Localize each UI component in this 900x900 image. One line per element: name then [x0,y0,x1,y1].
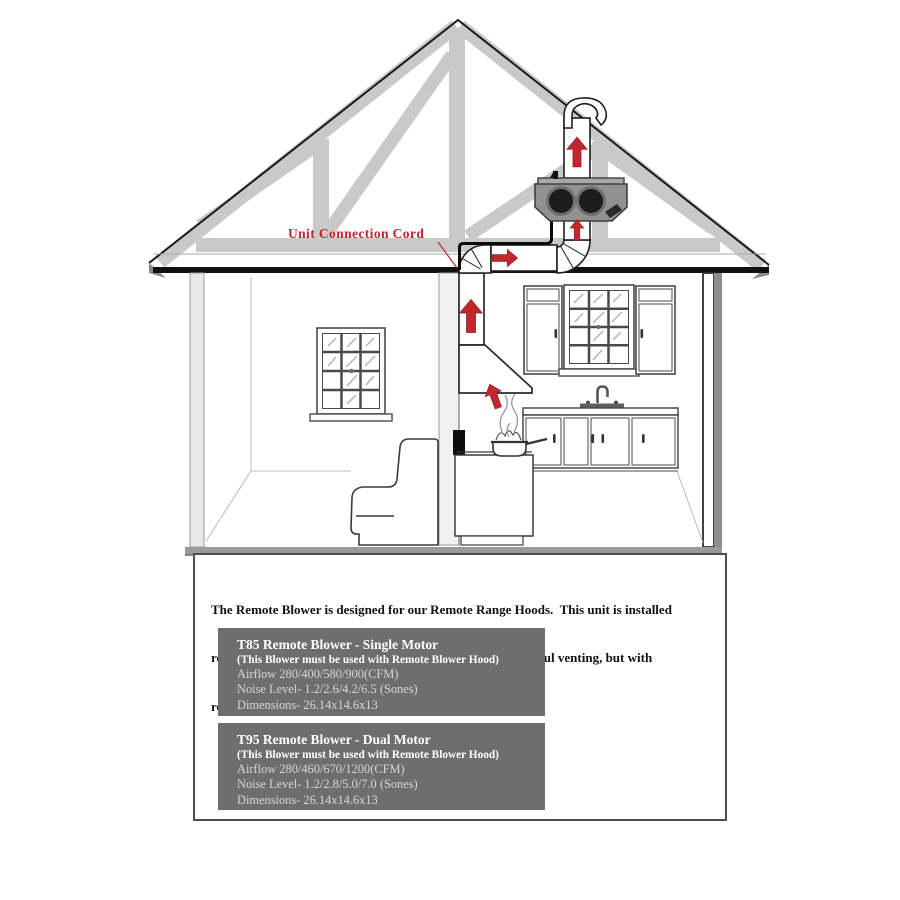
island-base [461,536,523,545]
product-dimensions: Dimensions- 26.14x14.6x13 [237,698,545,713]
sofa [351,439,438,545]
kitchen-window [559,285,639,376]
range-hood [459,273,532,393]
kitchen-sink [580,387,624,409]
product-title: T95 Remote Blower - Dual Motor [237,731,545,748]
living-room-window [310,328,392,421]
blower-motor-right [578,188,605,215]
right-wall [703,273,722,547]
product-subtitle: (This Blower must be used with Remote Bl… [237,653,545,667]
roof-truss [196,28,720,252]
window-latch [349,369,353,373]
kitchen-upper-cabinet-right [636,286,675,374]
product-dimensions: Dimensions- 26.14x14.6x13 [237,793,545,808]
kitchen-perspective-line [677,471,703,543]
blower-motor-left [548,188,575,215]
product-noise: Noise Level- 1.2/2.8/5.0/7.0 (Sones) [237,777,545,792]
faucet-icon [598,387,608,404]
description-line: The Remote Blower is designed for our Re… [211,602,672,618]
cabinet-handle [555,329,558,338]
product-airflow: Airflow 280/460/670/1200(CFM) [237,762,545,777]
left-wall [190,273,204,547]
unit-connection-cord-label: Unit Connection Cord [288,226,424,242]
product-noise: Noise Level- 1.2/2.6/4.2/6.5 (Sones) [237,682,545,697]
spec-card-t95: T95 Remote Blower - Dual Motor (This Blo… [218,723,545,810]
hood-canopy [459,345,532,393]
cord-connector [553,171,558,179]
wall-control-box [453,430,465,455]
cabinet-handle [641,329,644,338]
countertop [523,408,678,415]
window-latch [596,325,600,329]
spec-card-t85: T85 Remote Blower - Single Motor (This B… [218,628,545,716]
kitchen-upper-cabinet-left [524,286,562,374]
remote-blower-diagram-page: Unit Connection Cord The Remote Blower i… [0,0,900,900]
remote-blower-unit [535,171,627,221]
product-title: T85 Remote Blower - Single Motor [237,636,545,653]
product-airflow: Airflow 280/400/580/900(CFM) [237,667,545,682]
product-subtitle: (This Blower must be used with Remote Bl… [237,748,545,762]
roof-rafter-right [460,26,762,266]
window-sill [310,414,392,421]
window-sill [559,369,639,376]
